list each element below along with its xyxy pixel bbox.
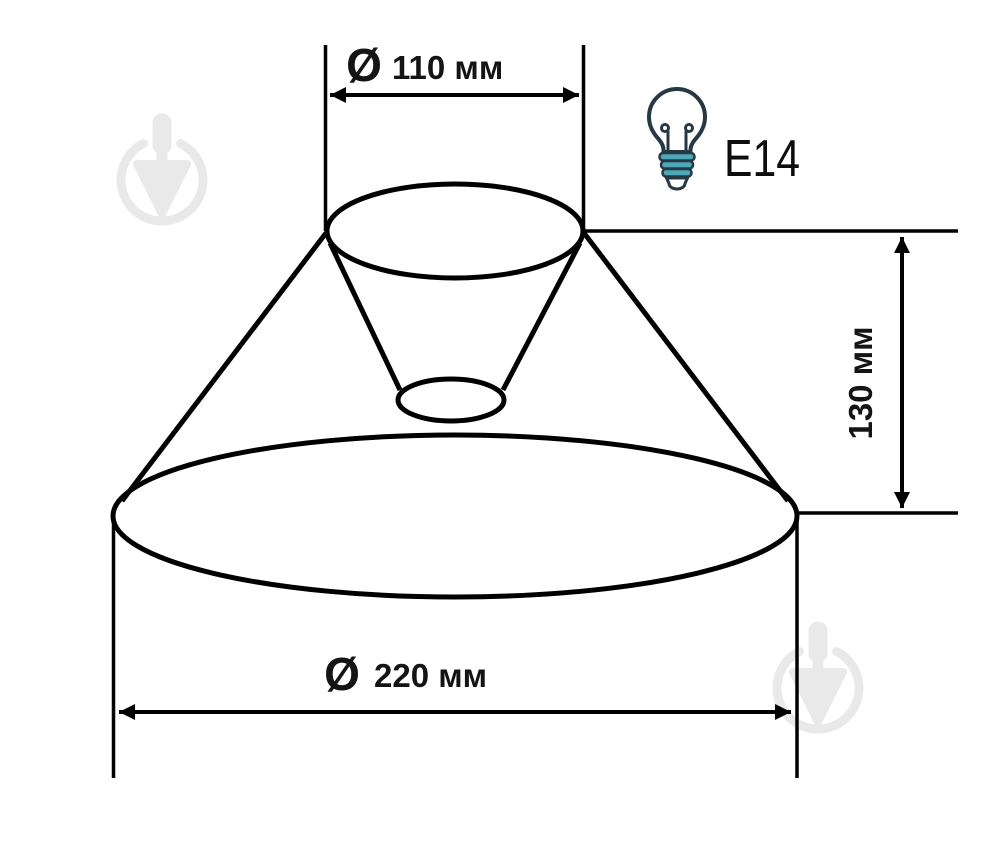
light-bulb-icon: [649, 89, 705, 189]
top-diameter-value: 110 мм: [392, 49, 503, 86]
socket-type-label: E14: [724, 130, 800, 188]
bulb-screw-base: [660, 153, 695, 189]
bottom-diameter-dimension: Ø 220 мм: [114, 520, 798, 778]
height-value: 130 мм: [842, 326, 879, 439]
bulb-glass-outline: [649, 89, 705, 152]
top-diameter-dimension: Ø 110 мм: [326, 39, 584, 231]
lampshade-dimension-diagram: Ø 110 мм 130 мм Ø 220 мм: [0, 0, 1002, 854]
bulb-filament: [662, 125, 693, 151]
outer-cone-right-line: [584, 233, 788, 501]
inner-cone-bottom-ellipse: [398, 379, 504, 421]
diagram-canvas: Ø 110 мм 130 мм Ø 220 мм: [0, 0, 1002, 854]
diameter-symbol: Ø: [324, 648, 360, 700]
trowel-circle-watermark-top-left: [121, 114, 203, 221]
bottom-diameter-value: 220 мм: [374, 657, 487, 694]
height-dimension: 130 мм: [584, 231, 958, 513]
bulb-contact-tip: [667, 178, 688, 189]
top-opening-ellipse: [327, 184, 583, 278]
lampshade-drawing: [113, 184, 797, 597]
diameter-symbol: Ø: [346, 39, 382, 91]
bottom-rim-ellipse: [113, 435, 797, 597]
outer-cone-left-line: [122, 233, 326, 501]
